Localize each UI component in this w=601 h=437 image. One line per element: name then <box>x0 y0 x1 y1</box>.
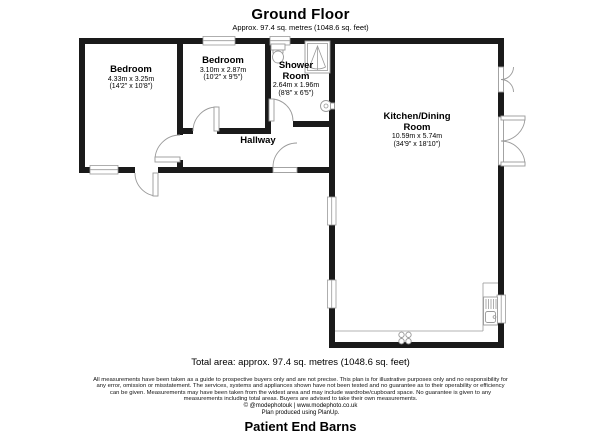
room-label-kitchen-dining: Kitchen/Dining Room 10.59m x 5.74m (34'9… <box>370 112 465 149</box>
window-kitchen-east <box>497 295 506 323</box>
room-dims-metric: 3.10m x 2.87m <box>178 67 268 75</box>
room-label-hallway: Hallway <box>228 136 288 147</box>
room-name: Bedroom <box>178 56 268 67</box>
room-dims-imperial: (10'2" x 9'5") <box>178 74 268 82</box>
room-label-bedroom-2: Bedroom 3.10m x 2.87m (10'2" x 9'5") <box>178 56 268 82</box>
produced-with-text: Plan produced using PlanUp. <box>0 410 601 416</box>
door-bedroom1-exterior <box>135 173 158 196</box>
french-door-kitchen-lower <box>499 116 526 166</box>
room-name: Bedroom <box>86 65 176 76</box>
door-hallway-entrance <box>273 143 297 173</box>
kitchen-sink-icon <box>484 297 498 325</box>
room-dims-metric: 2.64m x 1.96m <box>271 82 321 90</box>
room-dims-metric: 4.33m x 3.25m <box>86 76 176 84</box>
room-name: Kitchen/Dining Room <box>370 112 465 133</box>
kitchen-counter <box>335 283 498 331</box>
room-name: Hallway <box>228 136 288 147</box>
room-name: Shower Room <box>271 61 321 82</box>
french-door-kitchen-upper <box>499 67 514 92</box>
disclaimer-line: measurements including total areas. Buye… <box>0 396 601 402</box>
credit-text: © @modephotouk | www.modephoto.co.uk <box>0 403 601 409</box>
room-dims-imperial: (34'9" x 18'10") <box>370 141 465 149</box>
total-area-text: Total area: approx. 97.4 sq. metres (104… <box>0 357 601 368</box>
room-dims-imperial: (8'8" x 6'5") <box>271 90 321 98</box>
room-label-bedroom-1: Bedroom 4.33m x 3.25m (14'2" x 10'8") <box>86 65 176 91</box>
disclaimer-text: All measurements have been taken as a gu… <box>0 377 601 402</box>
door-shower-room <box>269 99 293 121</box>
window-kitchen-west-lower <box>328 280 337 308</box>
door-bedroom2 <box>193 107 219 131</box>
room-dims-metric: 10.59m x 5.74m <box>370 133 465 141</box>
window-kitchen-west-upper <box>328 197 337 225</box>
door-bedroom1-hallway <box>155 135 180 162</box>
property-name: Patient End Barns <box>0 419 601 434</box>
window-bedroom2-north <box>203 37 235 46</box>
room-label-shower-room: Shower Room 2.64m x 1.96m (8'8" x 6'5") <box>271 61 321 98</box>
room-dims-imperial: (14'2" x 10'8") <box>86 83 176 91</box>
window-bedroom1-south <box>90 166 118 175</box>
